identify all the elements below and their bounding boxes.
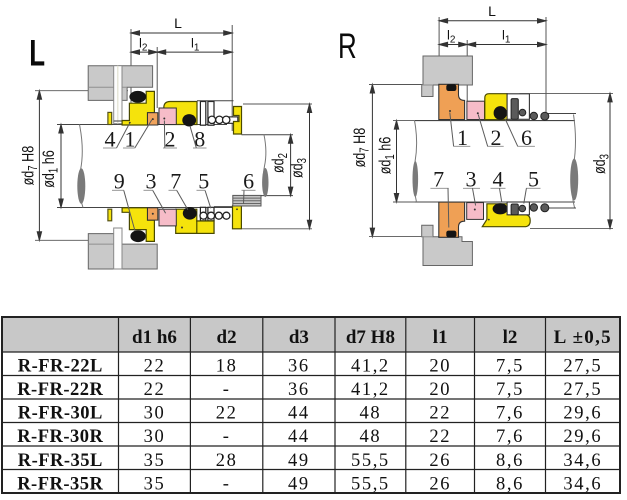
svg-text:20: 20 <box>429 357 451 377</box>
svg-text:22: 22 <box>429 427 451 447</box>
svg-text:48: 48 <box>360 404 382 424</box>
svg-text:22: 22 <box>216 404 238 424</box>
svg-text:49: 49 <box>288 451 310 471</box>
svg-text:36: 36 <box>288 380 310 400</box>
svg-text:L: L <box>29 32 45 74</box>
svg-text:18: 18 <box>216 357 238 377</box>
svg-text:34,6: 34,6 <box>563 451 602 471</box>
svg-text:35: 35 <box>144 474 166 494</box>
svg-text:49: 49 <box>288 474 310 494</box>
svg-text:26: 26 <box>429 474 451 494</box>
svg-text:27,5: 27,5 <box>563 380 602 400</box>
svg-text:l1: l1 <box>433 327 448 348</box>
svg-text:8,6: 8,6 <box>496 451 524 471</box>
svg-text:22: 22 <box>144 380 166 400</box>
svg-text:48: 48 <box>360 427 382 447</box>
svg-text:R-FR-35R: R-FR-35R <box>17 474 103 494</box>
svg-text:34,6: 34,6 <box>563 474 602 494</box>
svg-text:22: 22 <box>429 404 451 424</box>
svg-text:R-FR-22R: R-FR-22R <box>17 380 103 400</box>
svg-text:-: - <box>223 427 231 447</box>
svg-text:3: 3 <box>146 169 157 194</box>
svg-text:R-FR-30R: R-FR-30R <box>17 427 103 447</box>
svg-text:-: - <box>223 474 231 494</box>
svg-text:3: 3 <box>466 167 477 192</box>
svg-text:R: R <box>338 26 357 66</box>
svg-text:20: 20 <box>429 380 451 400</box>
svg-text:4: 4 <box>493 167 504 192</box>
svg-text:30: 30 <box>144 404 166 424</box>
svg-text:d3: d3 <box>289 327 309 348</box>
svg-text:R-FR-35L: R-FR-35L <box>18 451 103 471</box>
svg-text:26: 26 <box>429 451 451 471</box>
svg-text:l2: l2 <box>503 327 518 348</box>
svg-text:7,5: 7,5 <box>496 380 524 400</box>
svg-text:9: 9 <box>114 169 125 194</box>
svg-text:6: 6 <box>243 169 254 194</box>
svg-text:22: 22 <box>144 357 166 377</box>
svg-text:41,2: 41,2 <box>351 380 390 400</box>
svg-text:29,6: 29,6 <box>563 427 602 447</box>
svg-text:7,6: 7,6 <box>496 427 524 447</box>
svg-text:7,6: 7,6 <box>496 404 524 424</box>
svg-text:44: 44 <box>288 427 310 447</box>
svg-text:d7 H8: d7 H8 <box>346 327 395 348</box>
svg-text:8,6: 8,6 <box>496 474 524 494</box>
svg-text:5: 5 <box>528 167 539 192</box>
svg-text:7,5: 7,5 <box>496 357 524 377</box>
svg-text:d1 h6: d1 h6 <box>132 327 177 348</box>
svg-text:d2: d2 <box>217 327 237 348</box>
svg-text:5: 5 <box>198 169 209 194</box>
svg-text:55,5: 55,5 <box>351 474 390 494</box>
svg-text:R-FR-30L: R-FR-30L <box>18 404 103 424</box>
svg-text:27,5: 27,5 <box>563 357 602 377</box>
svg-text:R-FR-22L: R-FR-22L <box>18 357 103 377</box>
svg-text:55,5: 55,5 <box>351 451 390 471</box>
svg-text:7: 7 <box>433 167 444 192</box>
svg-text:30: 30 <box>144 427 166 447</box>
svg-text:44: 44 <box>288 404 310 424</box>
svg-text:36: 36 <box>288 357 310 377</box>
svg-text:41,2: 41,2 <box>351 357 390 377</box>
svg-text:35: 35 <box>144 451 166 471</box>
svg-text:ød7 H8: ød7 H8 <box>350 128 372 168</box>
svg-text:28: 28 <box>216 451 238 471</box>
svg-text:29,6: 29,6 <box>563 404 602 424</box>
svg-text:L: L <box>488 3 496 19</box>
svg-text:L ±0,5: L ±0,5 <box>554 327 612 348</box>
svg-text:-: - <box>223 380 231 400</box>
svg-text:L: L <box>174 15 182 31</box>
svg-text:ød7 H8: ød7 H8 <box>19 146 41 186</box>
svg-text:7: 7 <box>170 169 181 194</box>
